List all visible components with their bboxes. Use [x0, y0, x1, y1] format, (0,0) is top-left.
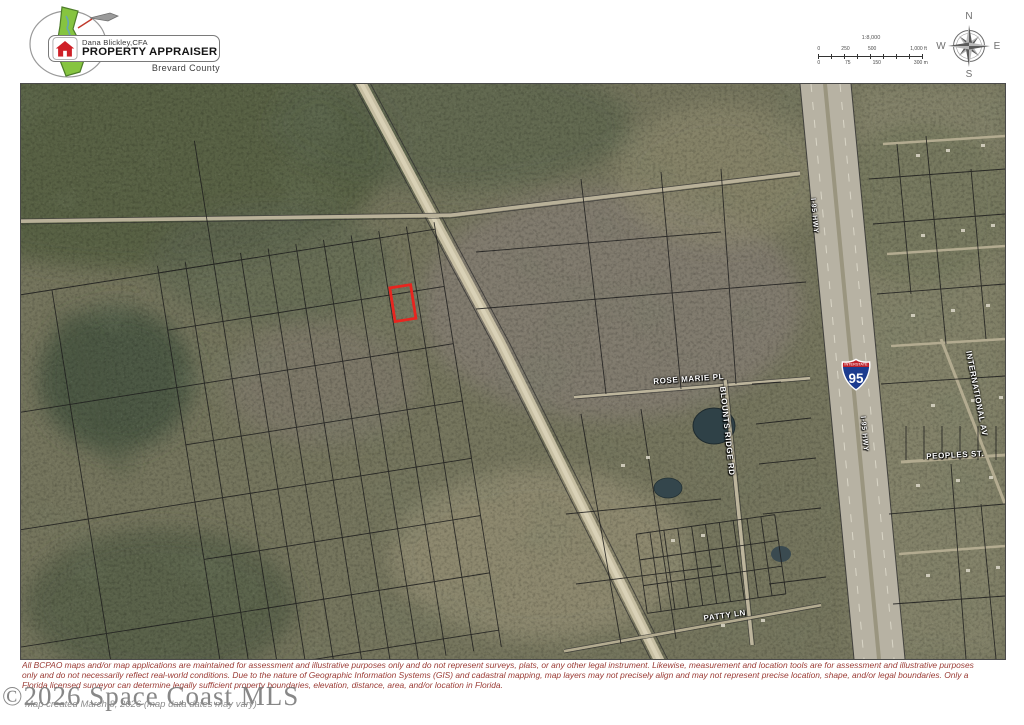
property-appraiser-logo: Dana Blickley,CFA PROPERTY APPRAISER Bre… — [26, 4, 241, 80]
scale-m-75: 75 — [845, 60, 851, 66]
scale-bar-line — [818, 56, 922, 57]
disclaimer-line-2: only and do not necessarily reflect real… — [22, 670, 1022, 680]
compass-north-label: N — [965, 11, 972, 22]
map-canvas: ROSE MARIE PL BLOUNTS RIDGE RD INTERNATI… — [20, 83, 1006, 660]
compass-south-label: S — [966, 69, 973, 78]
scale-m-0: 0 — [817, 60, 820, 66]
shield-banner-text: INTERSTATE — [844, 362, 868, 366]
shield-route-number: 95 — [849, 371, 864, 386]
appraiser-title: PROPERTY APPRAISER — [82, 47, 217, 58]
scale-m-300: 300 m — [914, 60, 928, 66]
scale-ft-250: 250 — [841, 46, 849, 52]
house-icon — [52, 37, 78, 60]
compass-rose-icon: N E S W — [935, 8, 1003, 78]
logo-name-plate: Dana Blickley,CFA PROPERTY APPRAISER — [48, 35, 220, 62]
scale-ft-1000: 1,000 ft — [910, 46, 927, 52]
scale-bar: 1:8,000 0 250 500 1,000 ft 0 75 150 300 … — [813, 35, 929, 67]
disclaimer-line-1: All BCPAO maps and/or map applications a… — [22, 660, 1022, 670]
map-created-date: Map created March 8, 2026 (map data date… — [25, 699, 257, 710]
interstate-95-shield-icon: INTERSTATE 95 — [839, 358, 873, 391]
scale-ft-0: 0 — [817, 46, 820, 52]
appraiser-name: Dana Blickley,CFA — [82, 39, 217, 47]
bcpao-map-document: Dana Blickley,CFA PROPERTY APPRAISER Bre… — [0, 0, 1024, 725]
scale-ratio: 1:8,000 — [813, 35, 929, 41]
compass-west-label: W — [936, 41, 946, 52]
compass-east-label: E — [994, 41, 1001, 52]
county-name: Brevard County — [118, 63, 220, 73]
scale-m-150: 150 — [873, 60, 881, 66]
scale-ft-500: 500 — [868, 46, 876, 52]
